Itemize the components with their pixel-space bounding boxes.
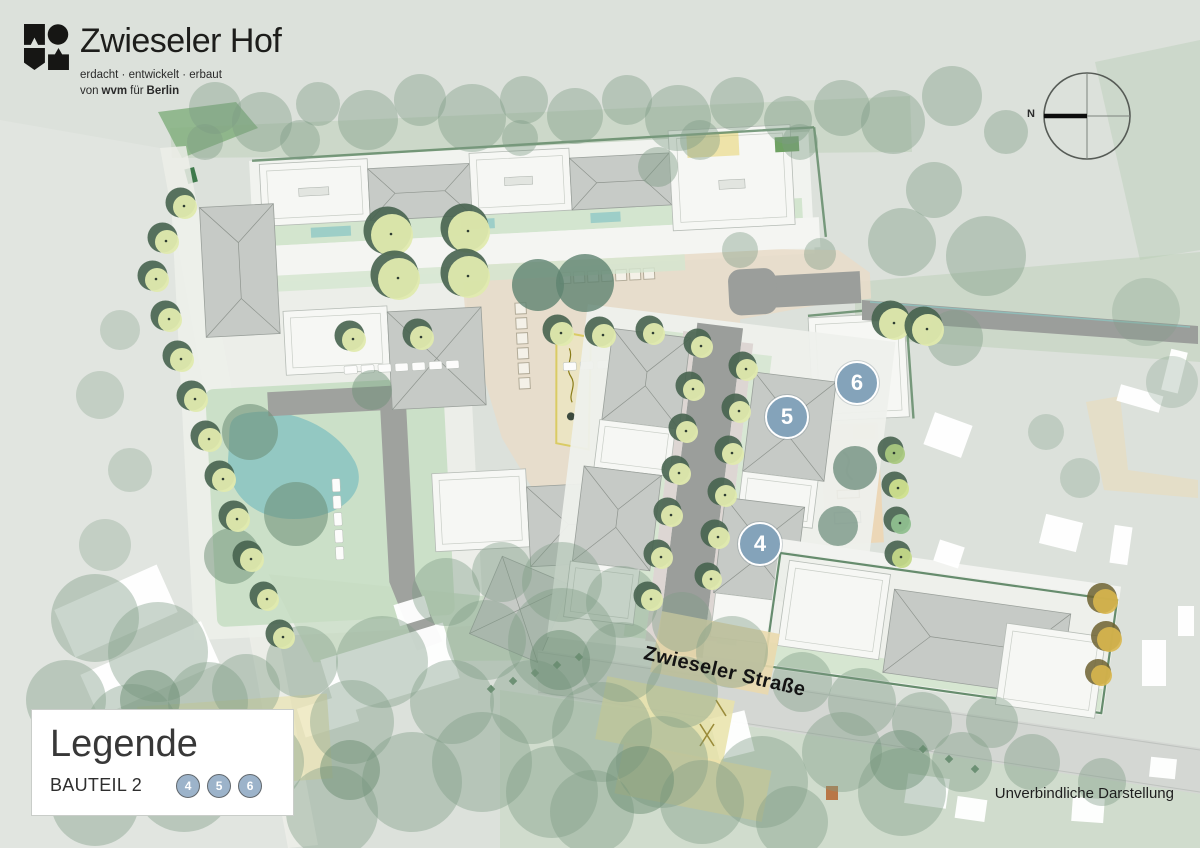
legend-circle-4: 4 xyxy=(176,774,200,798)
byline-city: Berlin xyxy=(147,85,180,97)
byline-wvm: wvm xyxy=(102,85,128,97)
compass: N xyxy=(1041,70,1133,162)
legend-title: Legende xyxy=(50,724,275,766)
compass-north-label: N xyxy=(1027,108,1035,120)
legend-circle-6: 6 xyxy=(238,774,262,798)
legend-circle-5: 5 xyxy=(207,774,231,798)
brand-tagline: erdacht · entwickelt · erbaut xyxy=(80,67,281,84)
building-marker-4[interactable]: 4 xyxy=(738,522,782,566)
byline-pre: von xyxy=(80,85,99,97)
byline-fuer: für xyxy=(130,85,143,97)
legend-circles: 4 5 6 xyxy=(176,774,262,798)
brand-block: Zwieseler Hof erdacht · entwickelt · erb… xyxy=(24,24,281,100)
brand-title: Zwieseler Hof xyxy=(80,24,281,60)
site-plan-page: Zwieseler Hof erdacht · entwickelt · erb… xyxy=(0,0,1200,848)
legend-section-label: BAUTEIL 2 xyxy=(50,775,142,796)
compass-icon xyxy=(1041,70,1133,162)
brand-taglines: erdacht · entwickelt · erbaut vonwvmfürB… xyxy=(80,67,281,100)
brand-byline: vonwvmfürBerlin xyxy=(80,83,281,100)
legend-panel: Legende BAUTEIL 2 4 5 6 xyxy=(31,709,294,816)
disclaimer-text: Unverbindliche Darstellung xyxy=(995,785,1174,802)
building-marker-5[interactable]: 5 xyxy=(765,395,809,439)
building-marker-6[interactable]: 6 xyxy=(835,361,879,405)
wvm-logo-icon xyxy=(24,24,70,70)
